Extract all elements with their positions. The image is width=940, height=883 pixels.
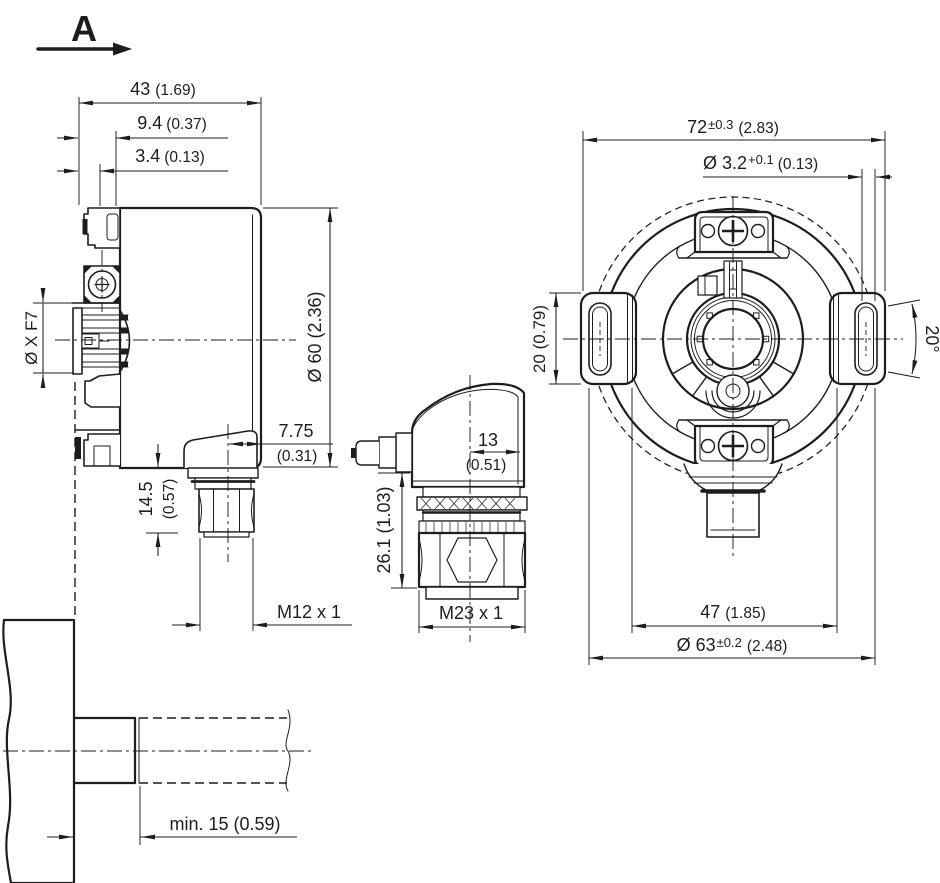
dim-m23-offset-mm: 13: [478, 430, 498, 450]
dim-lug-height: 20 (0.79): [530, 305, 549, 373]
mounting-lug-right: [830, 293, 885, 384]
dim-slot-spacing: 47(1.85): [700, 602, 766, 622]
dim-depth-3-4: 3.4(0.13): [135, 146, 205, 166]
view-direction-arrowhead-icon: [113, 43, 132, 56]
m12-connector-front: [684, 464, 782, 537]
dim-slot-angle: 20°: [922, 325, 940, 352]
dim-min-shaft-insertion: min. 15 (0.59): [169, 814, 280, 834]
view-direction-indicator: A: [38, 8, 132, 56]
dim-connector-offset-mm: 7.75: [278, 421, 313, 441]
dim-connector-length-mm: 14.5: [136, 481, 156, 516]
dim-connector-length-inch: (0.57): [161, 479, 178, 520]
m23-hex-nut: [419, 533, 525, 599]
dim-housing-diameter: Ø 60 (2.36): [305, 291, 325, 382]
housing-outline: [120, 208, 261, 468]
dim-overall-width: 72±0.3(2.83): [687, 117, 779, 137]
dim-housing-width: 43(1.69): [130, 79, 196, 99]
dim-m23-offset-inch: (0.51): [466, 457, 507, 474]
dim-bore: Ø X F7: [22, 311, 41, 365]
dim-flange-diameter: Ø 63±0.2(2.48): [677, 635, 788, 655]
dim-thread-m23: M23 x 1: [439, 603, 503, 623]
dim-pin-hole: Ø 3.2+0.1(0.13): [703, 152, 818, 173]
dim-connector-offset-inch: (0.31): [277, 448, 318, 465]
shaft-mounting-view: [3, 620, 290, 883]
view-letter: A: [71, 8, 97, 49]
stator-coupling-plate: [73, 308, 82, 374]
mounting-wall: [3, 620, 74, 883]
dim-m23-height: 26.1 (1.03): [374, 486, 394, 573]
m23-coupling-rings: [417, 487, 527, 533]
mounting-lug-left: [581, 293, 636, 384]
m12-hex-nut: [199, 489, 254, 532]
dim-thread-m12: M12 x 1: [277, 602, 341, 622]
m12-connector-side: [184, 431, 258, 537]
cable-gland: [351, 433, 412, 472]
technical-drawing-page: A: [0, 0, 940, 883]
dim-depth-9-4: 9.4(0.37): [137, 113, 207, 133]
encoder-dimensional-drawing: A: [0, 0, 940, 883]
